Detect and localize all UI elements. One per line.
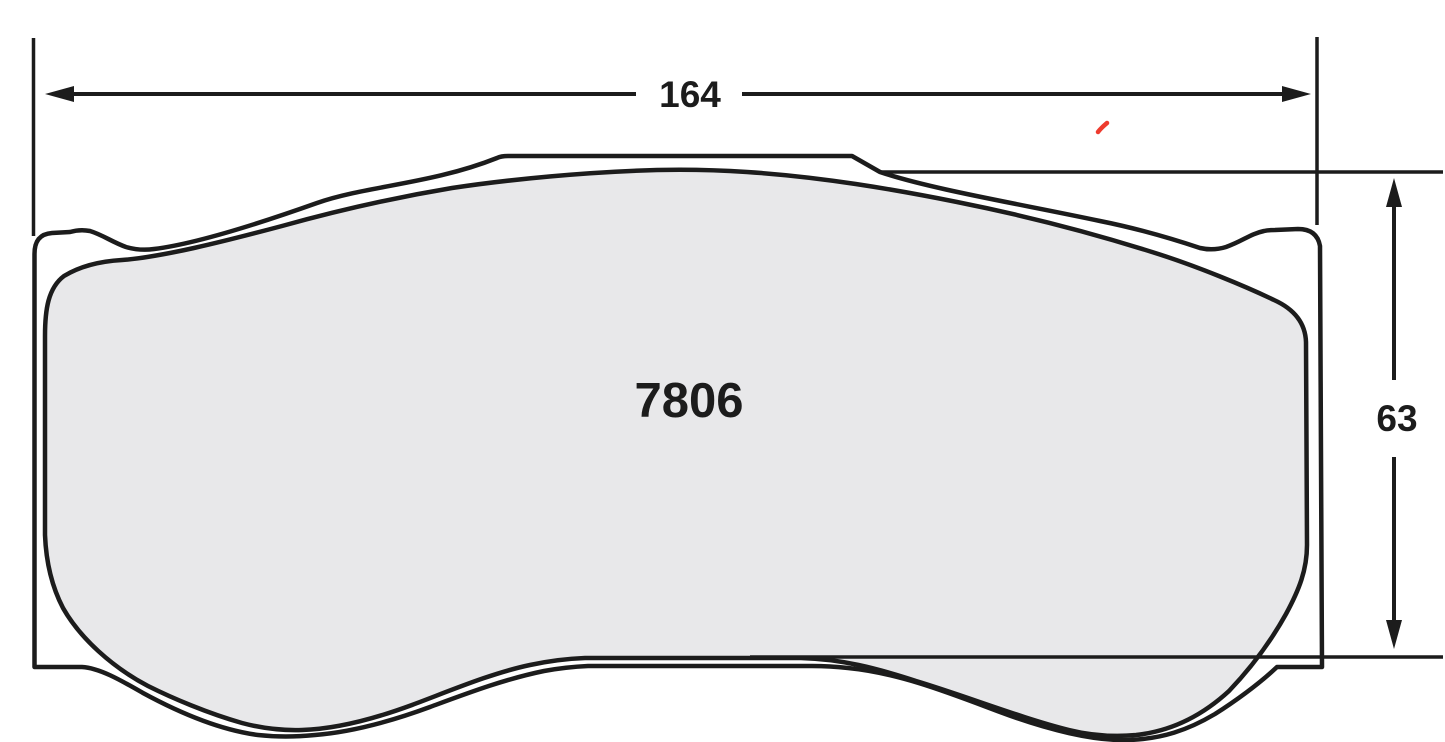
width-dimension-label: 164 — [659, 74, 721, 115]
width-arrow-right-icon — [1282, 86, 1311, 102]
part-number-label: 7806 — [634, 374, 743, 428]
drawing-canvas: 7806 164 63 — [0, 0, 1445, 742]
red-mark — [1098, 123, 1107, 132]
brake-pad-drawing: 7806 164 63 — [0, 0, 1445, 742]
width-arrow-left-icon — [45, 86, 74, 102]
height-arrow-down-icon — [1386, 620, 1402, 649]
friction-material — [45, 170, 1307, 736]
height-arrow-up-icon — [1386, 178, 1402, 207]
height-dimension-label: 63 — [1376, 398, 1417, 439]
